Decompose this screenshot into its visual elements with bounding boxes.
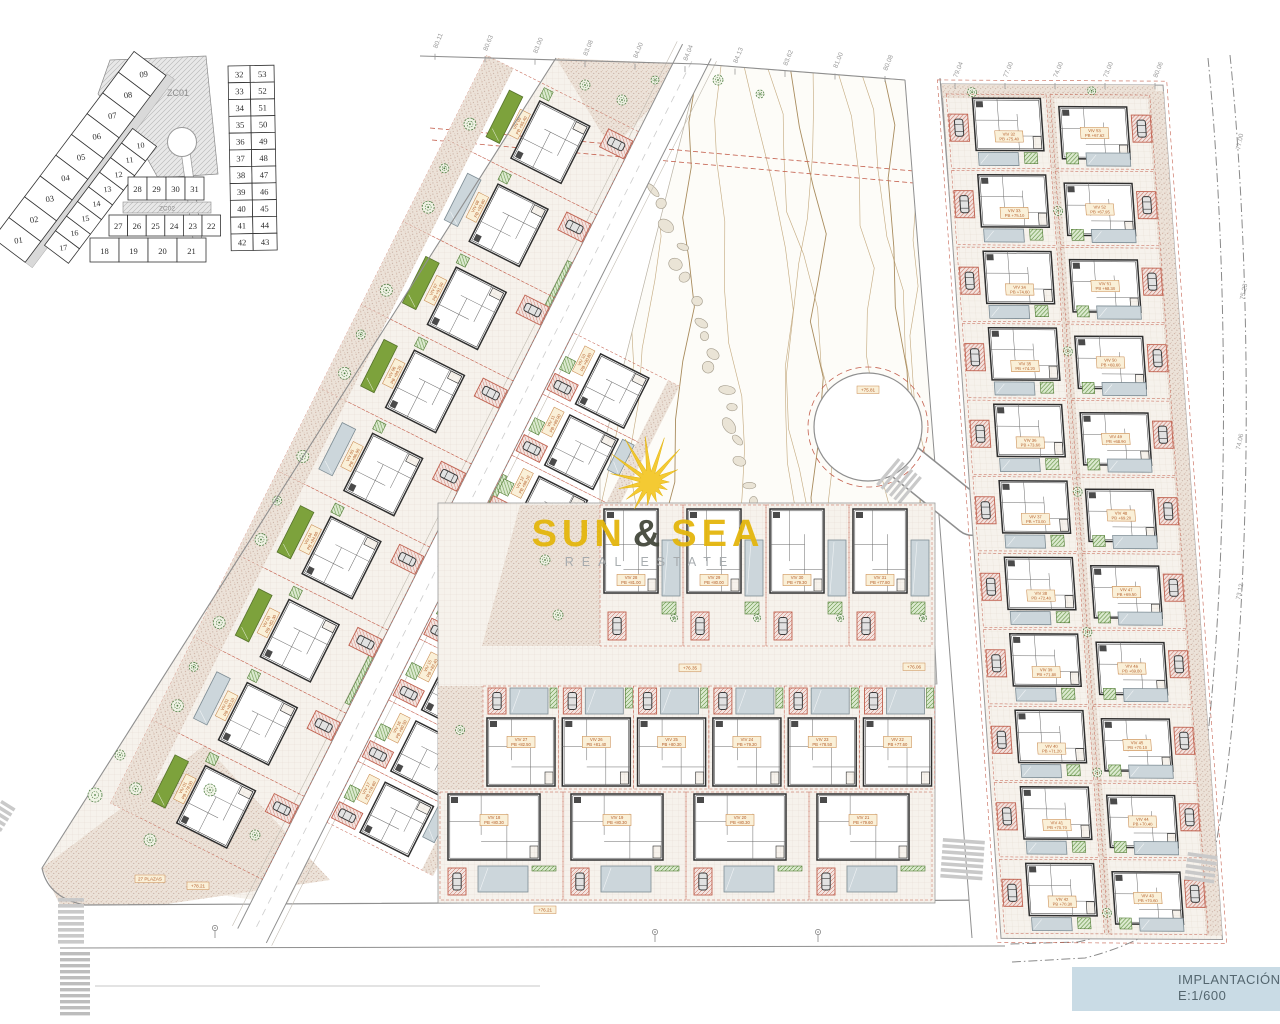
tree-icon	[837, 615, 844, 622]
svg-text:27: 27	[114, 221, 123, 231]
tree-icon	[553, 610, 563, 620]
villa-label: VIV 25PB +80.30	[658, 736, 686, 747]
svg-text:PB +74.60: PB +74.60	[1010, 289, 1031, 294]
planter	[1072, 841, 1086, 852]
house-floorplan	[817, 794, 909, 860]
svg-text:PB +68.30: PB +68.30	[1095, 286, 1116, 291]
parking-space	[1158, 498, 1179, 525]
svg-text:47: 47	[260, 170, 269, 180]
svg-text:PB +80.30: PB +80.30	[484, 820, 504, 825]
logo-subtitle: REAL ESTATE	[565, 555, 735, 569]
pool	[601, 866, 651, 892]
parking-space	[949, 114, 970, 141]
planter	[911, 602, 925, 614]
planter	[1024, 153, 1038, 164]
svg-text:45: 45	[260, 203, 269, 213]
car-icon	[1008, 884, 1018, 901]
tree-icon	[250, 830, 260, 840]
pool	[1000, 458, 1041, 471]
svg-text:10: 10	[136, 141, 145, 151]
svg-text:26: 26	[133, 221, 142, 231]
planter	[532, 866, 556, 871]
planter	[625, 688, 632, 708]
svg-text:41: 41	[237, 221, 246, 231]
house-floorplan	[978, 175, 1049, 228]
car-icon	[986, 578, 996, 595]
pool	[1086, 153, 1131, 166]
svg-text:07: 07	[107, 110, 117, 121]
car-icon	[1002, 808, 1012, 825]
parking-space	[954, 191, 975, 218]
pool	[1026, 841, 1067, 854]
svg-text:PB +73.00: PB +73.00	[1026, 519, 1047, 524]
svg-text:PB +75.40: PB +75.40	[999, 136, 1020, 141]
svg-text:12: 12	[114, 170, 123, 180]
svg-text:13: 13	[103, 184, 112, 194]
parking-space	[857, 612, 875, 640]
title-block: IMPLANTACIÓN PB E:1/600	[1072, 967, 1280, 1011]
sheet-title: IMPLANTACIÓN PB	[1178, 972, 1280, 987]
villa-label: VIV 27PB +82.50	[507, 736, 535, 747]
svg-text:PB +79.20: PB +79.20	[737, 742, 757, 747]
house-floorplan	[1004, 557, 1075, 610]
svg-text:PB +80.30: PB +80.30	[662, 742, 682, 747]
svg-text:PB +79.60: PB +79.60	[853, 820, 873, 825]
parking-space	[571, 868, 589, 895]
svg-text:ZC01: ZC01	[167, 88, 189, 98]
svg-text:01: 01	[14, 235, 24, 246]
planter	[1066, 153, 1079, 164]
tree-icon	[540, 555, 550, 565]
svg-text:PB +77.80: PB +77.80	[870, 580, 890, 585]
parking-space	[448, 868, 466, 895]
car-icon	[954, 119, 964, 136]
parking-space	[694, 868, 712, 895]
tree-icon	[713, 75, 723, 85]
parking-space	[1163, 574, 1184, 601]
parking-space	[981, 573, 1002, 600]
svg-text:PB +71.80: PB +71.80	[1037, 672, 1058, 677]
house-floorplan	[999, 481, 1070, 534]
villa-label: VIV 20PB +80.30	[726, 814, 754, 825]
svg-text:20: 20	[158, 246, 167, 256]
site-plan-drawing: VIV 01PB +78.00VIV 02PB +80.10VIV 03PB +…	[0, 0, 1280, 1024]
car-icon	[794, 693, 802, 710]
svg-text:49: 49	[259, 136, 268, 146]
villa-label: VIV 34PB +74.60	[1005, 284, 1034, 295]
villa-label: VIV 29PB +80.00	[700, 574, 728, 585]
svg-text:PB +67.62: PB +67.62	[1085, 133, 1106, 138]
tree-icon	[756, 90, 764, 98]
villa-label: VIV 28PB +81.00	[617, 574, 645, 585]
tree-icon	[456, 726, 465, 735]
pool	[1016, 688, 1057, 701]
svg-text:40: 40	[237, 204, 246, 214]
svg-text:PB +71.20: PB +71.20	[1042, 749, 1063, 754]
parking-space	[959, 267, 980, 294]
svg-text:34: 34	[235, 103, 244, 113]
planter	[1040, 382, 1054, 393]
house-floorplan	[1010, 634, 1081, 687]
house-floorplan	[1015, 710, 1086, 763]
parking-space	[817, 868, 835, 895]
parking-space	[691, 612, 709, 640]
planter	[851, 688, 858, 708]
svg-text:PB +69.50: PB +69.50	[1117, 592, 1138, 597]
svg-text:36: 36	[236, 137, 245, 147]
svg-text:PB +78.50: PB +78.50	[812, 742, 832, 747]
car-icon	[1153, 350, 1163, 367]
tree-icon	[115, 750, 125, 760]
parking-space	[608, 612, 626, 640]
car-icon	[992, 655, 1002, 672]
car-icon	[696, 618, 704, 635]
planter	[701, 688, 708, 708]
pool	[887, 688, 925, 714]
svg-text:48: 48	[259, 153, 268, 163]
villa-label: VIV 37PB +73.00	[1021, 513, 1050, 524]
svg-text:PB +81.40: PB +81.40	[586, 742, 606, 747]
pool	[1129, 765, 1174, 778]
svg-text:PB +68.90: PB +68.90	[1106, 439, 1127, 444]
tree-icon	[144, 834, 156, 846]
svg-text:21: 21	[187, 246, 196, 256]
svg-text:PB +82.50: PB +82.50	[511, 742, 531, 747]
svg-text:ZC02: ZC02	[159, 206, 175, 213]
villa-label: VIV 43PB +70.60	[1133, 892, 1162, 903]
parking-space	[774, 612, 792, 640]
parking-space	[789, 688, 807, 714]
planter	[1061, 688, 1075, 699]
car-icon	[997, 731, 1007, 748]
villa-label: VIV 19PB +80.30	[603, 814, 631, 825]
villa-label: VIV 21PB +79.60	[849, 814, 877, 825]
planter	[745, 602, 759, 614]
house-floorplan	[983, 251, 1054, 304]
parking-space	[1002, 879, 1023, 906]
svg-text:PB +72.40: PB +72.40	[1031, 596, 1052, 601]
svg-text:+78.21: +78.21	[191, 884, 206, 889]
svg-text:38: 38	[237, 170, 246, 180]
villa-VIV-25: VIV 25PB +80.30	[634, 686, 709, 789]
tree-icon	[617, 95, 627, 105]
parking-space	[991, 726, 1012, 753]
parking-space	[639, 688, 657, 714]
svg-text:18: 18	[100, 246, 109, 256]
svg-text:PB +81.00: PB +81.00	[621, 580, 641, 585]
planter	[1071, 229, 1084, 240]
pool	[724, 866, 774, 892]
tree-icon	[651, 76, 659, 84]
house-floorplan	[571, 794, 663, 860]
svg-text:51: 51	[258, 103, 267, 113]
svg-text:43: 43	[261, 237, 270, 247]
car-icon	[1158, 426, 1168, 443]
car-icon	[822, 873, 830, 890]
house-floorplan	[994, 404, 1065, 457]
car-icon	[1185, 809, 1195, 826]
villa-label: VIV 32PB +75.40	[995, 131, 1024, 142]
villa-VIV-27: VIV 27PB +82.50	[483, 686, 558, 789]
villa-label: VIV 47PB +69.50	[1112, 586, 1141, 597]
logo-word-sea: SEA	[671, 513, 764, 555]
svg-text:PB +74.20: PB +74.20	[1015, 366, 1036, 371]
planter	[662, 602, 676, 614]
svg-text:50: 50	[259, 119, 268, 129]
svg-text:PB +80.00: PB +80.00	[704, 580, 724, 585]
pool	[1118, 612, 1163, 625]
parking-space	[488, 688, 506, 714]
villa-label: VIV 26PB +81.40	[582, 736, 610, 747]
logo-ampersand: &	[633, 513, 665, 555]
planter	[1119, 918, 1132, 929]
pool	[811, 688, 849, 714]
svg-text:PB +70.10: PB +70.10	[1127, 745, 1148, 750]
svg-text:PB +77.60: PB +77.60	[888, 742, 908, 747]
house-floorplan	[972, 98, 1043, 151]
planter	[828, 602, 842, 614]
pool	[1102, 382, 1147, 395]
svg-text:25: 25	[151, 221, 160, 231]
pool	[911, 540, 929, 596]
car-icon	[453, 873, 461, 890]
tree-icon	[967, 88, 977, 97]
car-icon	[1179, 732, 1189, 749]
car-icon	[613, 618, 621, 635]
car-icon	[1163, 503, 1173, 520]
car-icon	[719, 693, 727, 710]
tree-icon	[88, 788, 102, 802]
planter	[1093, 535, 1106, 546]
pool	[736, 688, 774, 714]
villa-label: VIV 22PB +77.60	[884, 736, 912, 747]
villa-label: VIV 40PB +71.20	[1037, 743, 1066, 754]
svg-text:24: 24	[170, 221, 179, 231]
car-icon	[965, 272, 975, 289]
svg-text:PB +68.60: PB +68.60	[1101, 362, 1122, 367]
villa-VIV-24: VIV 24PB +79.20	[709, 686, 784, 789]
villa-label: VIV 45PB +70.10	[1123, 739, 1152, 750]
planter	[1098, 612, 1111, 623]
parking-space	[563, 688, 581, 714]
svg-text:42: 42	[238, 237, 247, 247]
parking-space	[865, 688, 883, 714]
planter	[550, 688, 557, 708]
villa-label: VIV 48PB +69.20	[1107, 510, 1136, 521]
svg-text:+76.06: +76.06	[907, 665, 922, 670]
car-icon	[643, 693, 651, 710]
planter	[1051, 535, 1065, 546]
svg-text:PB +79.30: PB +79.30	[787, 580, 807, 585]
car-icon	[1147, 273, 1157, 290]
svg-text:28: 28	[133, 184, 142, 194]
planter	[1114, 841, 1127, 852]
villa-label: VIV 53PB +67.62	[1080, 127, 1109, 138]
pool	[1107, 459, 1152, 472]
svg-text:PB +67.95: PB +67.95	[1090, 209, 1111, 214]
svg-text:30: 30	[171, 184, 180, 194]
parking-space	[1179, 804, 1200, 831]
planter	[1082, 382, 1095, 393]
house-floorplan	[638, 718, 706, 786]
villa-label: VIV 51PB +68.30	[1091, 280, 1120, 291]
villa-label: VIV 41PB +70.70	[1043, 819, 1072, 830]
svg-text:05: 05	[76, 152, 86, 163]
villa-label: VIV 31PB +77.80	[866, 574, 894, 585]
planter	[1103, 688, 1116, 699]
pool	[1005, 535, 1046, 548]
svg-text:02: 02	[29, 214, 39, 225]
planter	[927, 688, 934, 708]
svg-text:19: 19	[129, 246, 138, 256]
planter	[1029, 229, 1043, 240]
pool	[510, 688, 548, 714]
pool	[585, 688, 623, 714]
svg-text:14: 14	[92, 199, 101, 209]
car-icon	[1137, 120, 1147, 137]
villa-label: VIV 18PB +80.30	[480, 814, 508, 825]
planter	[1045, 459, 1059, 470]
car-icon	[970, 349, 980, 366]
svg-text:52: 52	[258, 86, 267, 96]
pool	[828, 540, 846, 596]
svg-text:33: 33	[235, 86, 244, 96]
car-icon	[1142, 197, 1152, 214]
villa-label: VIV 38PB +72.40	[1027, 590, 1056, 601]
car-icon	[576, 873, 584, 890]
svg-text:PB +70.70: PB +70.70	[1047, 825, 1068, 830]
car-icon	[981, 502, 991, 519]
pool	[1097, 306, 1142, 319]
parking-space	[1137, 192, 1158, 219]
parking-space	[997, 803, 1018, 830]
planter	[1109, 765, 1122, 776]
pool	[978, 152, 1019, 165]
car-icon	[862, 618, 870, 635]
villa-label: VIV 36PB +73.60	[1016, 437, 1045, 448]
svg-text:PB +70.40: PB +70.40	[1133, 821, 1154, 826]
svg-text:PB +69.80: PB +69.80	[1122, 668, 1143, 673]
house-floorplan	[1020, 787, 1091, 840]
svg-text:22: 22	[207, 221, 216, 231]
svg-text:PB +80.30: PB +80.30	[607, 820, 627, 825]
svg-text:PB +80.30: PB +80.30	[730, 820, 750, 825]
svg-text:+75.81: +75.81	[861, 388, 876, 393]
parking-space	[1168, 651, 1189, 678]
pool	[1134, 842, 1179, 855]
svg-text:44: 44	[260, 220, 269, 230]
villa-label: VIV 33PB +75.10	[1000, 207, 1029, 218]
villa-label: VIV 44PB +70.40	[1128, 816, 1157, 827]
svg-text:27 PLAZAS: 27 PLAZAS	[138, 877, 162, 882]
pool	[1031, 917, 1072, 930]
pool	[1113, 535, 1158, 548]
tree-icon	[580, 80, 590, 90]
house-floorplan	[694, 794, 786, 860]
car-icon	[1169, 579, 1179, 596]
parking-space	[965, 344, 986, 371]
car-icon	[1174, 656, 1184, 673]
logo-wordmark: SUN&SEA	[532, 513, 765, 555]
tree-icon	[920, 615, 927, 622]
svg-text:46: 46	[260, 187, 269, 197]
villa-VIV-26: VIV 26PB +81.40	[558, 686, 633, 789]
parking-space	[986, 650, 1007, 677]
car-icon	[976, 425, 986, 442]
parking-space	[1174, 727, 1195, 754]
svg-text:15: 15	[81, 214, 90, 224]
planter	[1077, 918, 1091, 929]
svg-text:+76.21: +76.21	[538, 908, 553, 913]
logo-word-sun: SUN	[532, 513, 627, 555]
planter	[1067, 765, 1081, 776]
villa-label: VIV 30PB +79.30	[783, 574, 811, 585]
car-icon	[960, 196, 970, 213]
tree-icon	[671, 615, 678, 622]
car-icon	[869, 693, 877, 710]
parking-space	[1147, 345, 1168, 372]
sheet-scale: E:1/600	[1178, 988, 1226, 1003]
car-icon	[699, 873, 707, 890]
house-floorplan	[487, 718, 555, 786]
parking-space	[1142, 268, 1163, 295]
parking-space	[714, 688, 732, 714]
svg-text:06: 06	[92, 131, 102, 142]
car-icon	[493, 693, 501, 710]
villa-label: VIV 35PB +74.20	[1011, 360, 1040, 371]
house-floorplan	[788, 718, 856, 786]
svg-text:37: 37	[236, 153, 245, 163]
villa-label: VIV 50PB +68.60	[1096, 357, 1125, 368]
parking-space	[975, 497, 996, 524]
villa-label: VIV 49PB +68.90	[1101, 433, 1130, 444]
car-icon	[1190, 885, 1200, 902]
svg-text:PB +73.60: PB +73.60	[1021, 442, 1042, 447]
svg-text:PB +70.60: PB +70.60	[1138, 898, 1159, 903]
pool	[994, 382, 1035, 395]
villa-VIV-22: VIV 22PB +77.60	[860, 686, 935, 789]
svg-text:08: 08	[123, 89, 133, 100]
pool	[847, 866, 897, 892]
svg-text:32: 32	[235, 69, 244, 79]
svg-text:PB +69.20: PB +69.20	[1111, 515, 1132, 520]
pool	[661, 688, 699, 714]
planter	[1035, 306, 1049, 317]
svg-text:53: 53	[258, 69, 267, 79]
tree-icon	[204, 784, 216, 796]
site-plan-sheet: { "title_block": { "line1": "IMPLANTACIÓ…	[0, 0, 1280, 1024]
svg-text:29: 29	[152, 184, 161, 194]
house-floorplan	[1026, 863, 1097, 916]
villa-VIV-23: VIV 23PB +78.50	[784, 686, 859, 789]
planter	[901, 866, 925, 871]
villa-label: VIV 52PB +67.95	[1086, 204, 1115, 215]
svg-text:17: 17	[59, 243, 68, 253]
svg-text:39: 39	[237, 187, 246, 197]
planter	[1077, 306, 1090, 317]
svg-text:PB +75.10: PB +75.10	[1005, 213, 1026, 218]
villa-label: VIV 42PB +70.30	[1048, 896, 1077, 907]
pool	[1091, 229, 1136, 242]
pool	[1010, 611, 1051, 624]
pool	[989, 305, 1030, 318]
pool	[1139, 918, 1184, 931]
pool	[478, 866, 528, 892]
svg-text:+76.35: +76.35	[683, 666, 698, 671]
svg-text:09: 09	[139, 69, 149, 80]
car-icon	[568, 693, 576, 710]
car-icon	[779, 618, 787, 635]
